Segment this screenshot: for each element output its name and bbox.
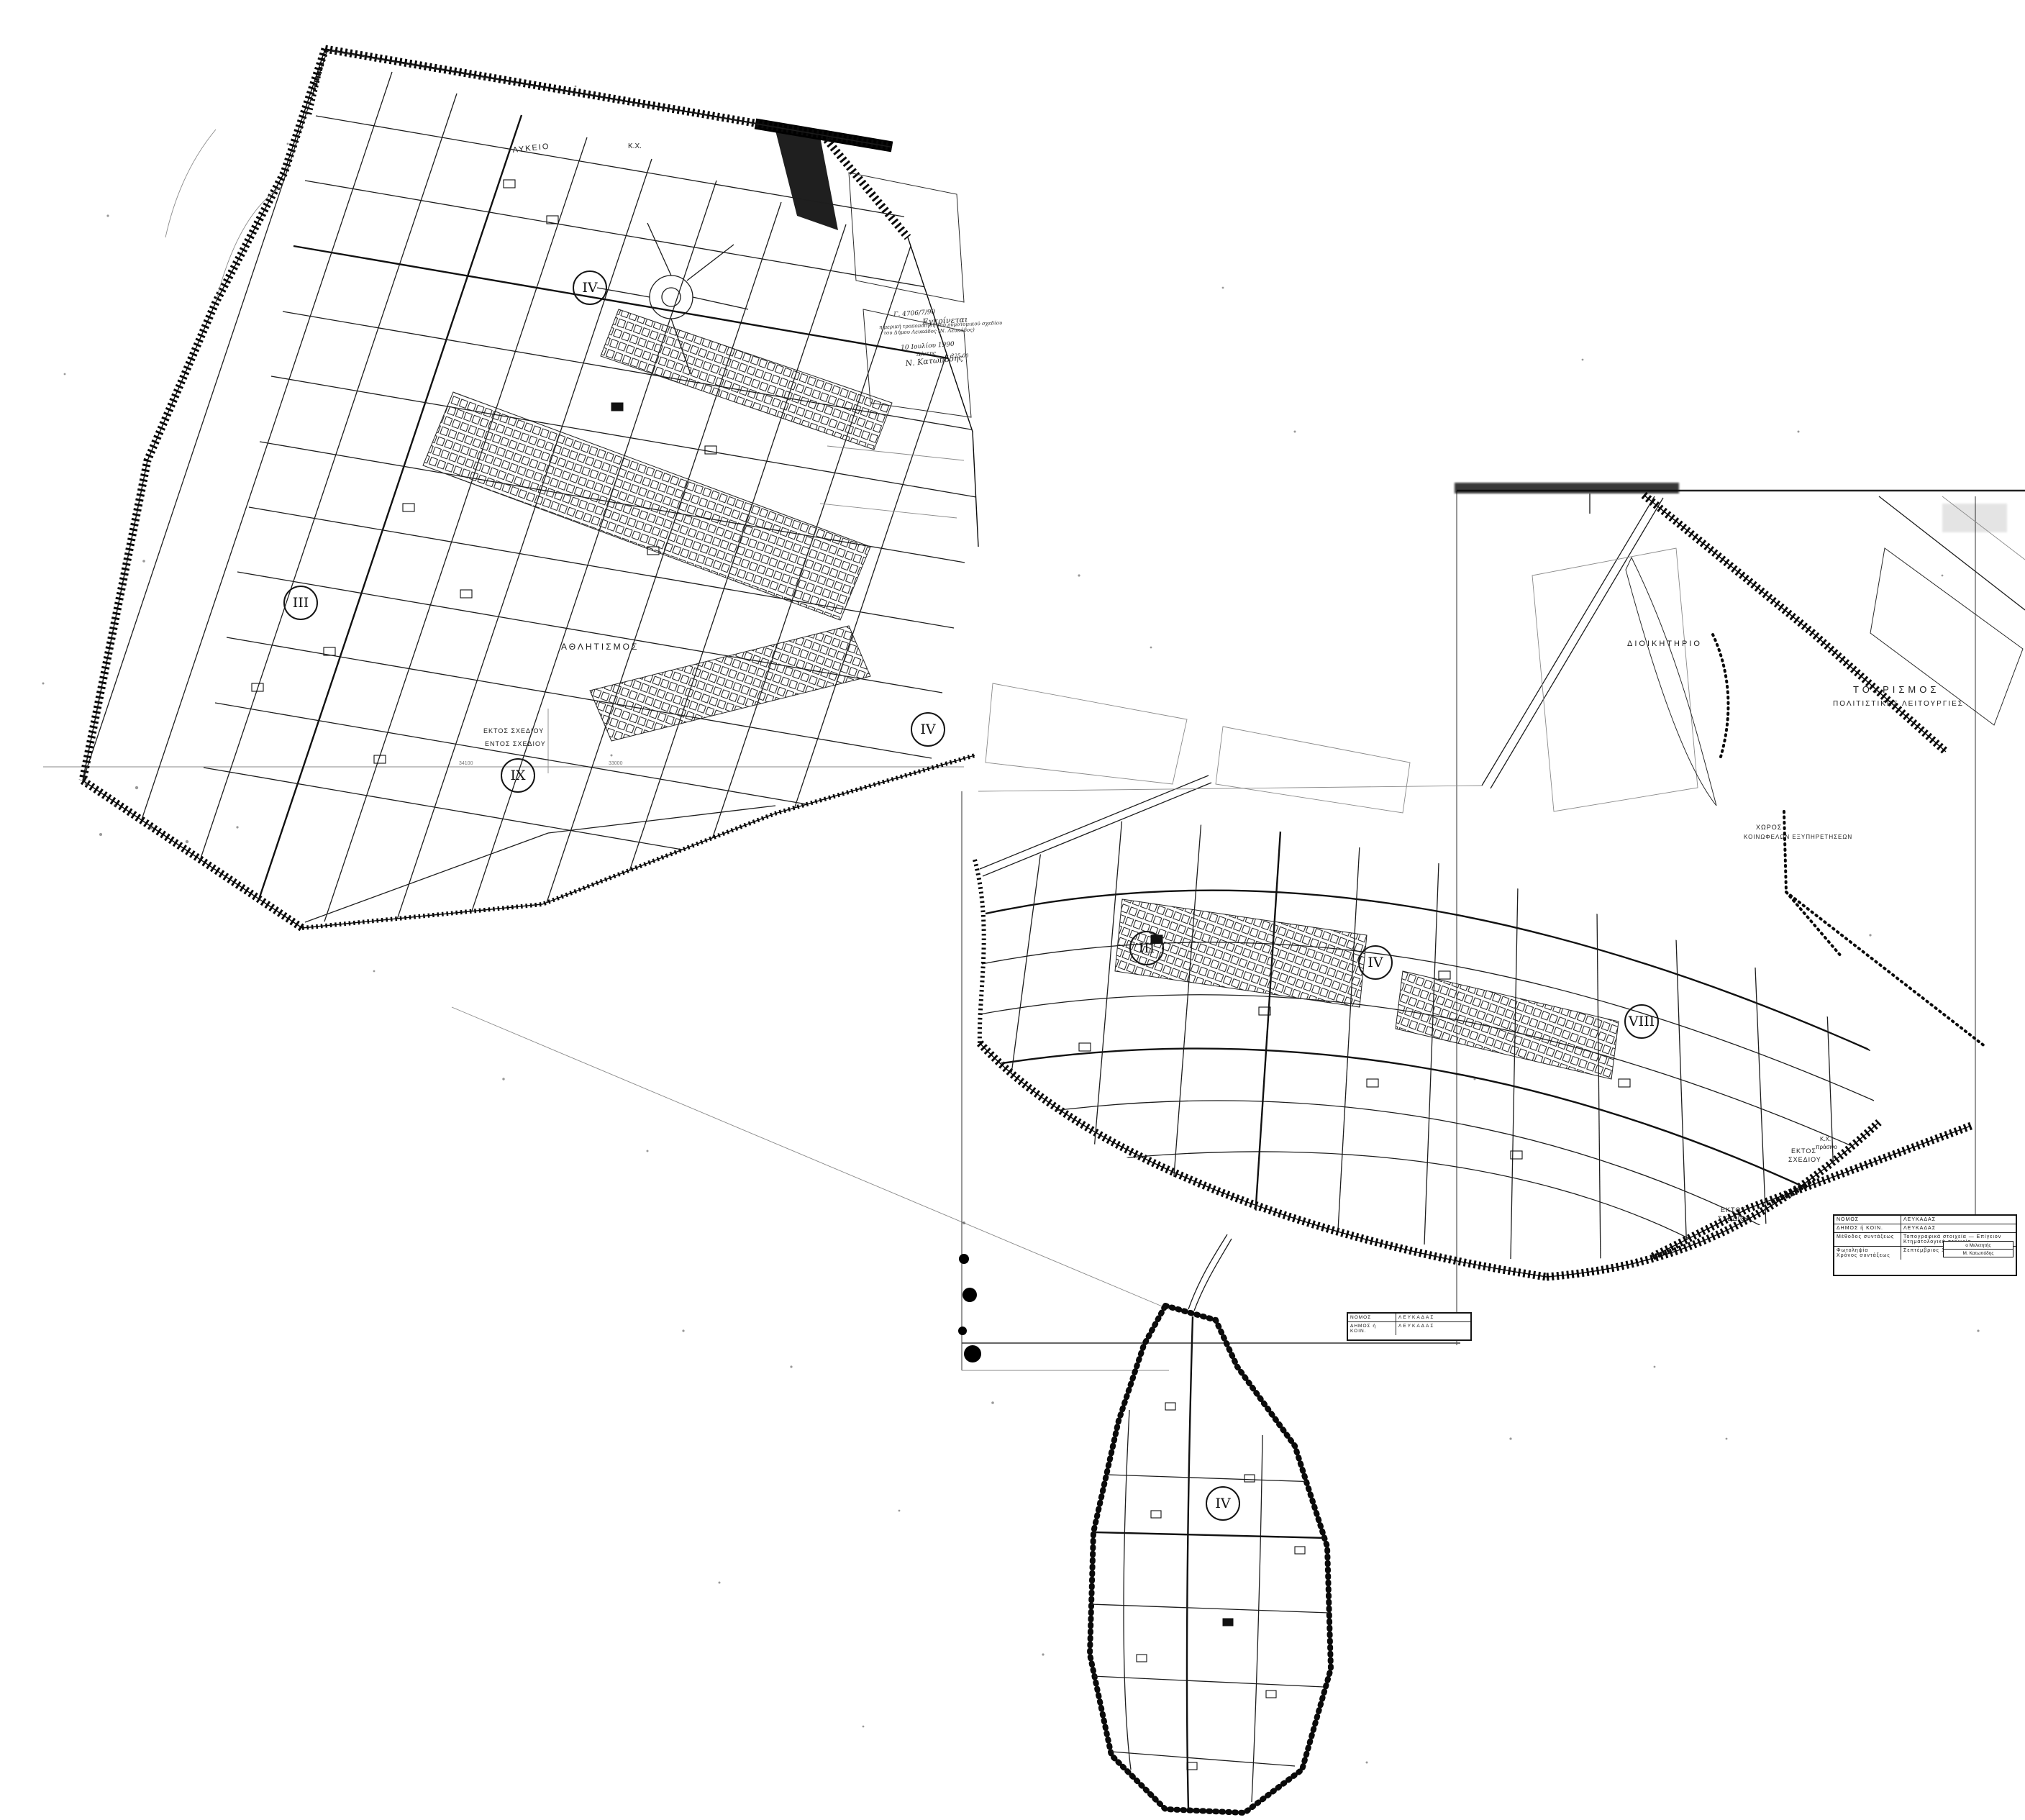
partial-title-block-nomos-value: ΛΕΥΚΑΔΑΣ	[1396, 1314, 1470, 1321]
partial-title-block: ΝΟΜΟΣ ΛΕΥΚΑΔΑΣ ΔΗΜΟΣ ή ΚΟΙΝ. ΛΕΥΚΑΔΑΣ	[1347, 1312, 1472, 1341]
title-block-nomos-value: ΛΕΥΚΑΔΑΣ	[1901, 1216, 2016, 1224]
map-label-kx-prasino-2: πράσινο	[1816, 1145, 1837, 1150]
map-label-dioikitirio: ΔΙΟΙΚΗΤΗΡΙΟ	[1627, 640, 1702, 648]
partial-title-block-nomos-label: ΝΟΜΟΣ	[1348, 1314, 1396, 1321]
map-label-kx-left: Κ.Χ.	[628, 143, 642, 150]
sheet-border-lines	[43, 491, 2025, 1370]
left-cluster-dense-housing	[423, 309, 892, 741]
sector-numeral-2: III	[283, 586, 318, 620]
map-label-ektos-sxediou-r2b: ΣΧΕΔΙΟΥ	[1718, 1216, 1751, 1222]
scanned-city-plan-lefkada: ΛΥΚΕΙΟΚ.Χ.ΑΘΛΗΤΙΣΜΟΣΕΚΤΟΣ ΣΧΕΔΙΟΥΕΝΤΟΣ Σ…	[0, 0, 2025, 1820]
sector-numeral-6: IV	[1358, 945, 1393, 980]
map-label-ektos-sxediou-r1a: ΕΚΤΟΣ	[1791, 1148, 1816, 1155]
partial-title-block-dimos-label: ΔΗΜΟΣ ή ΚΟΙΝ.	[1348, 1322, 1396, 1335]
right-cluster-dense-housing	[1115, 899, 1619, 1079]
title-block: ΝΟΜΟΣ ΛΕΥΚΑΔΑΣ ΔΗΜΟΣ ή ΚΟΙΝ. ΛΕΥΚΑΔΑΣ Μέ…	[1833, 1214, 2017, 1276]
sector-numeral-3: IX	[501, 758, 535, 793]
title-block-time-label: Χρόνος συντάξεως	[1837, 1253, 1898, 1258]
map-label-athlitismos: ΑΘΛΗΤΙΣΜΟΣ	[561, 642, 639, 651]
bottom-cluster-boundary	[1090, 1234, 1331, 1813]
scan-noise	[42, 86, 1980, 1764]
map-label-grid-coordinate-2: 33000	[609, 761, 622, 766]
title-block-method-value-1: Τοπογραφικά στοιχεία — Επίγειον	[1903, 1234, 2013, 1239]
title-block-author-label: ο Μελετητής	[1944, 1242, 2013, 1250]
map-label-koinofelon-exypiretiseon: ΚΟΙΝΩΦΕΛΩΝ ΕΞΥΠΗΡΕΤΗΣΕΩΝ	[1744, 834, 1852, 840]
sector-numeral-7: VIII	[1624, 1004, 1659, 1039]
title-block-dimos-value: ΛΕΥΚΑΔΑΣ	[1901, 1224, 2016, 1232]
title-block-photo-label: Φωτοληψία	[1837, 1248, 1898, 1253]
right-cluster-street-grid	[980, 816, 1874, 1266]
sector-numeral-5: III	[1129, 931, 1164, 965]
sector-numeral-4: IV	[911, 712, 945, 747]
map-drawing	[0, 0, 2025, 1820]
map-label-ektos-sxediou-r2a: ΕΚΤΟΣ	[1721, 1207, 1746, 1214]
title-block-author-name: Μ. Κατωπόδης	[1944, 1250, 2013, 1257]
partial-title-block-dimos-value: ΛΕΥΚΑΔΑΣ	[1396, 1322, 1470, 1335]
map-label-xoros: ΧΩΡΟΣ	[1756, 824, 1782, 831]
sector-numeral-8: IV	[1206, 1486, 1240, 1521]
map-label-tourismos: ΤΟΥΡΙΣΜΟΣ	[1853, 685, 1939, 694]
title-block-author-box: ο Μελετητής Μ. Κατωπόδης	[1943, 1241, 2013, 1257]
title-block-method-label: Μέθοδος συντάξεως	[1834, 1233, 1901, 1246]
left-cluster-rural-parcels	[165, 129, 971, 922]
right-cluster-boundary	[975, 495, 1985, 1277]
map-label-grid-coordinate-1: 34100	[459, 761, 473, 766]
map-label-politistikes-leitourgies: ΠΟΛΙΤΙΣΤΙΚΕΣ ΛΕΙΤΟΥΡΓΙΕΣ	[1833, 701, 1964, 708]
map-label-kx-prasino-1: Κ.Χ.	[1820, 1137, 1831, 1142]
title-block-dimos-label: ΔΗΜΟΣ ή ΚΟΙΝ.	[1834, 1224, 1901, 1232]
handwritten-note-line-8: 225.00	[951, 354, 969, 359]
title-block-nomos-label: ΝΟΜΟΣ	[1834, 1216, 1901, 1224]
bottom-cluster-street-grid	[1090, 1306, 1329, 1809]
sector-numeral-1: IV	[573, 270, 607, 305]
map-label-entos-sxediou-left: ΕΝΤΟΣ ΣΧΕΔΙΟΥ	[485, 741, 546, 747]
map-label-ektos-sxediou-left: ΕΚΤΟΣ ΣΧΕΔΙΟΥ	[483, 728, 544, 734]
map-label-ektos-sxediou-r1b: ΣΧΕΔΙΟΥ	[1788, 1157, 1821, 1163]
